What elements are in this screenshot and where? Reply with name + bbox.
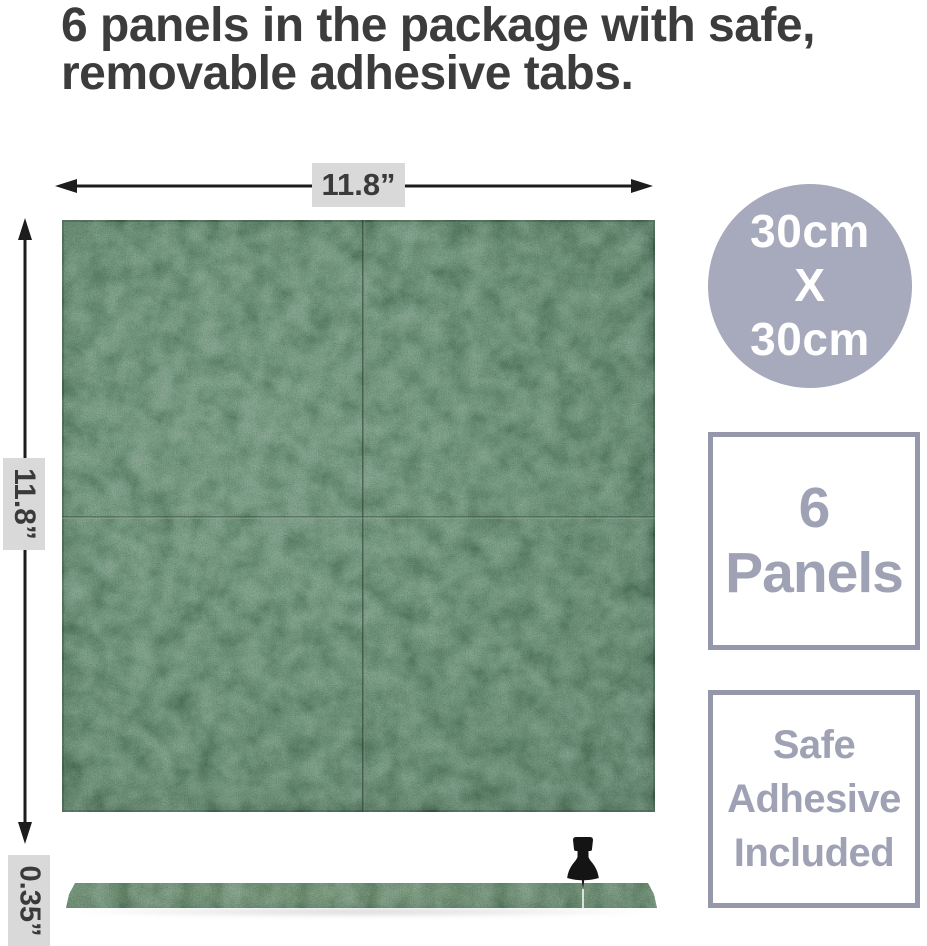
size-badge-line-2: X	[794, 259, 825, 313]
panel-seam-horizontal	[62, 516, 655, 519]
panel-count-badge: 6 Panels	[708, 432, 920, 650]
height-dimension-label: 11.8”	[3, 458, 45, 550]
height-dimension-value: 11.8”	[7, 468, 41, 540]
pushpin-icon	[560, 836, 606, 914]
size-badge-line-1: 30cm	[750, 205, 870, 259]
adhesive-badge-line-2: Adhesive	[727, 772, 901, 826]
page-title-line-2: removable adhesive tabs.	[61, 50, 921, 98]
page-title: 6 panels in the package with safe, remov…	[61, 2, 921, 98]
panel-count-word: Panels	[725, 541, 903, 606]
size-badge-line-3: 30cm	[750, 313, 870, 367]
page-title-line-1: 6 panels in the package with safe,	[61, 2, 921, 50]
width-dimension-value: 11.8”	[321, 167, 395, 203]
acoustic-panel-image	[62, 220, 655, 812]
adhesive-badge: Safe Adhesive Included	[708, 690, 920, 908]
thickness-dimension-value: 0.35”	[13, 865, 46, 936]
width-dimension-label: 11.8”	[312, 163, 405, 207]
product-infographic: 6 panels in the package with safe, remov…	[0, 0, 927, 946]
adhesive-badge-line-3: Included	[734, 826, 894, 880]
adhesive-badge-line-1: Safe	[773, 718, 856, 772]
size-badge-circle: 30cm X 30cm	[708, 184, 912, 388]
thickness-dimension-label: 0.35”	[8, 855, 50, 946]
panel-count-number: 6	[799, 476, 830, 541]
